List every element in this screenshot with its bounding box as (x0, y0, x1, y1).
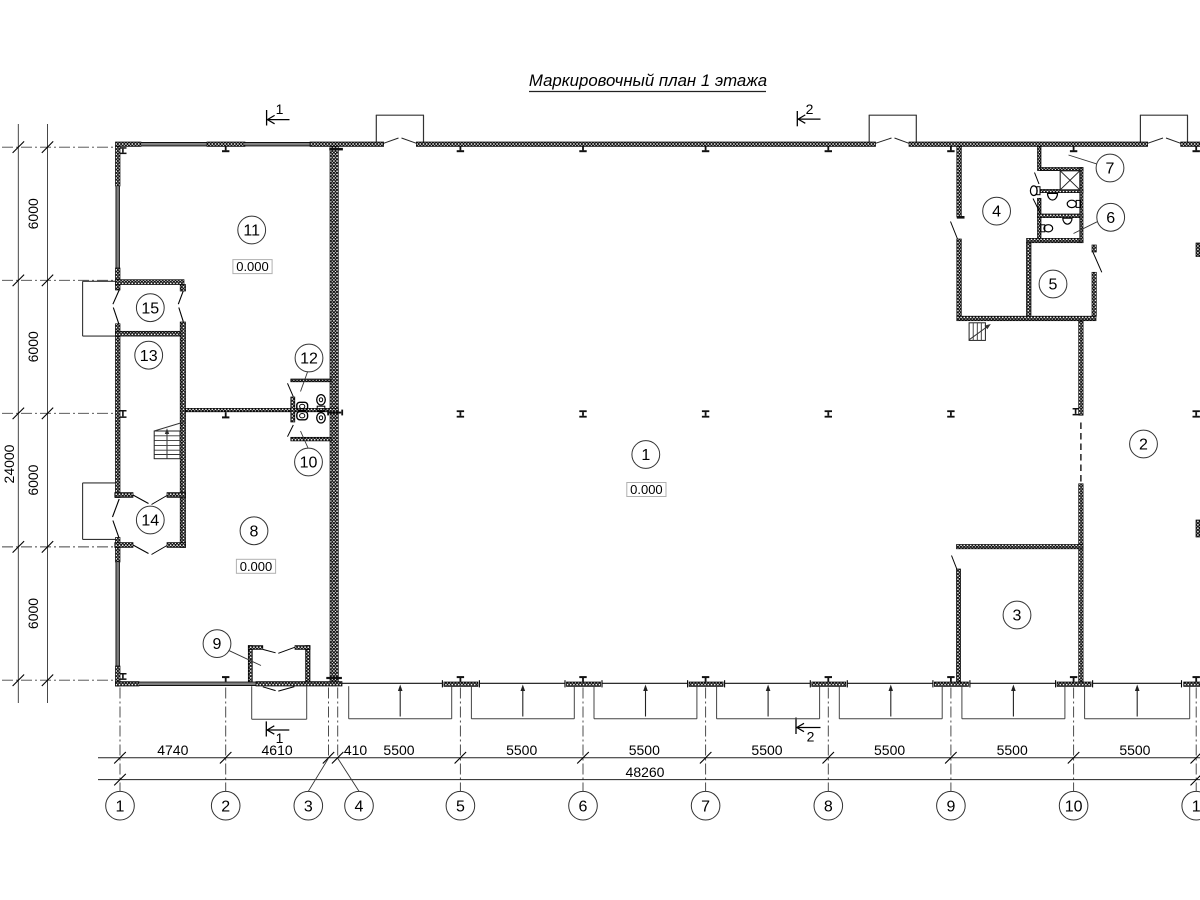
svg-text:6: 6 (1106, 210, 1115, 227)
svg-text:10: 10 (1065, 798, 1083, 815)
svg-text:1: 1 (276, 101, 284, 117)
svg-text:4740: 4740 (157, 742, 188, 758)
svg-text:6000: 6000 (25, 598, 41, 629)
svg-text:3: 3 (304, 798, 313, 815)
svg-text:1: 1 (276, 730, 284, 746)
svg-text:1: 1 (641, 447, 650, 464)
svg-text:11: 11 (243, 223, 260, 240)
svg-text:6: 6 (579, 798, 588, 815)
svg-text:0.000: 0.000 (236, 259, 269, 274)
svg-text:15: 15 (141, 300, 159, 317)
svg-text:9: 9 (213, 636, 222, 653)
svg-text:1: 1 (116, 798, 125, 815)
svg-text:2: 2 (806, 101, 814, 117)
svg-text:7: 7 (701, 798, 710, 815)
svg-text:48260: 48260 (626, 764, 665, 780)
svg-text:8: 8 (250, 523, 259, 540)
svg-text:5500: 5500 (874, 742, 905, 758)
svg-text:5500: 5500 (506, 742, 537, 758)
svg-text:5500: 5500 (997, 742, 1028, 758)
svg-text:10: 10 (300, 455, 318, 472)
svg-text:5: 5 (1049, 277, 1058, 294)
svg-text:3: 3 (1013, 608, 1022, 625)
svg-text:Маркировочный план 1 этажа: Маркировочный план 1 этажа (529, 71, 767, 90)
svg-text:12: 12 (300, 351, 318, 368)
svg-text:410: 410 (344, 742, 368, 758)
svg-text:2: 2 (221, 798, 230, 815)
svg-text:9: 9 (946, 798, 955, 815)
svg-text:8: 8 (824, 798, 833, 815)
svg-text:5: 5 (456, 798, 465, 815)
svg-text:5500: 5500 (1119, 742, 1150, 758)
svg-text:5500: 5500 (629, 742, 660, 758)
svg-text:5500: 5500 (383, 742, 414, 758)
svg-text:6000: 6000 (25, 464, 41, 495)
svg-text:0.000: 0.000 (240, 559, 273, 574)
svg-text:2: 2 (1139, 437, 1148, 454)
svg-text:6000: 6000 (25, 198, 41, 229)
svg-text:14: 14 (141, 513, 159, 530)
svg-text:1: 1 (1192, 798, 1200, 815)
svg-text:4: 4 (992, 204, 1001, 221)
svg-text:5500: 5500 (751, 742, 782, 758)
svg-text:2: 2 (807, 729, 815, 745)
svg-text:6000: 6000 (25, 331, 41, 362)
svg-text:13: 13 (140, 348, 158, 365)
svg-text:0.000: 0.000 (630, 482, 663, 497)
svg-text:24000: 24000 (1, 444, 17, 483)
svg-text:7: 7 (1106, 161, 1115, 178)
svg-text:4: 4 (355, 798, 364, 815)
